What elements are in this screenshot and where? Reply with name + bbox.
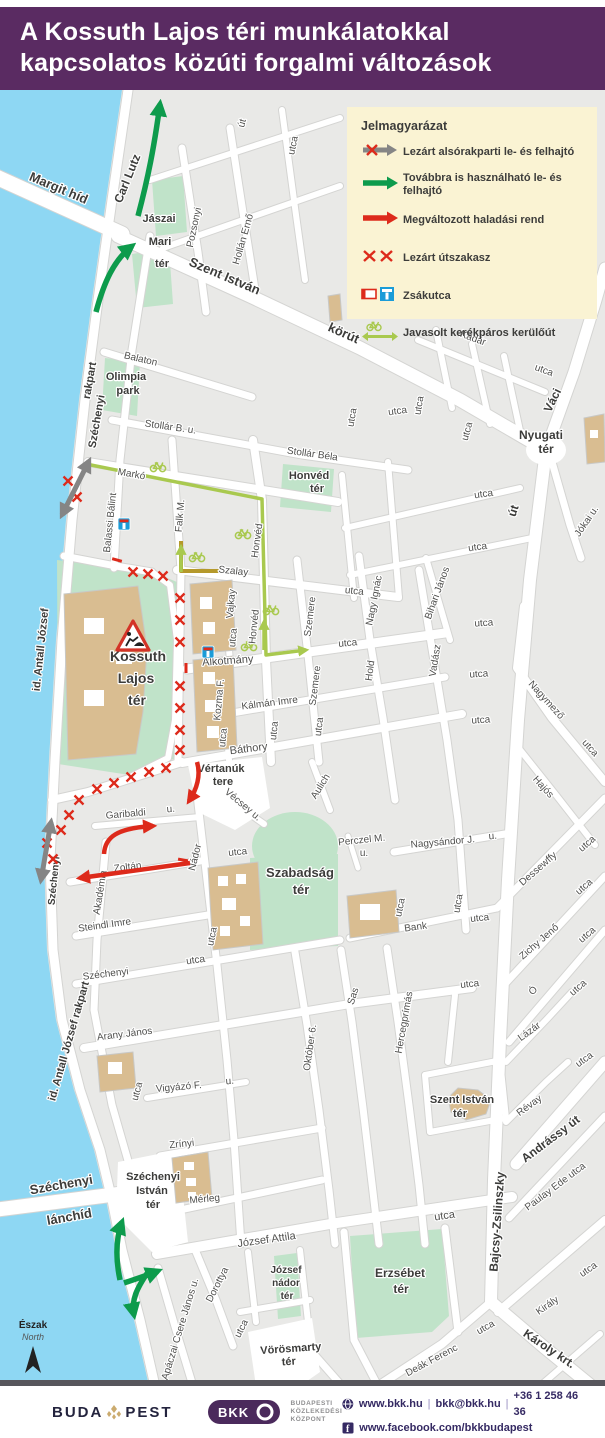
header: A Kossuth Lajos téri munkálatokkal kapcs… [0,7,605,90]
bkk-name-line3: KÖZPONT [291,1416,343,1424]
legend-item-label: Lezárt alsórakparti le- és felhajtó [403,146,574,159]
legend-title: Jelmagyarázat [361,119,585,133]
dead-end-sign-icon [118,518,130,530]
place-label: Vértanúk [197,763,245,775]
street-jnador-e [300,1250,308,1322]
building-courtyard [203,672,215,684]
street-oktober6 [295,952,335,1244]
street-label: utca [313,716,326,737]
legend-item-label: Megváltozott haladási rend [403,214,544,227]
street-label: utca [470,912,490,925]
page-title: A Kossuth Lajos téri munkálatokkal kapcs… [0,7,605,79]
street-label: utca [338,637,358,650]
footer: BUDA PEST BKK BUDAPESTI KÖZLEKEDÉSI KÖZP… [0,1386,605,1438]
building-courtyard [200,597,212,609]
bkk-name: BUDAPESTI KÖZLEKEDÉSI KÖZPONT [291,1400,343,1424]
building-courtyard [108,1062,122,1074]
budapest-logo-left: BUDA [52,1404,103,1421]
bkk-email-link[interactable]: bkk@bkk.hu [436,1396,501,1412]
street-label: utca [268,720,281,740]
building-small-top [328,294,342,322]
place-label: Lajos [118,670,155,686]
street-label: Vajkay [225,589,239,619]
street-label: Jókai u. [573,504,601,539]
building-courtyard [590,430,598,438]
title-line-2: kapcsolatos közúti forgalmi változások [20,48,605,79]
place-label: tér [128,692,146,708]
street-label: utca [578,1260,600,1280]
dead-end-icon [361,285,399,303]
contact-row-1: www.bkk.hu | bkk@bkk.hu | +36 1 258 46 3… [342,1388,591,1420]
place-label: tér [146,1199,161,1211]
bike-detour-icon [361,321,399,341]
place-label: tér [281,1355,297,1368]
building-courtyard [240,916,250,926]
place-label: park [116,385,140,397]
legend-item-label: Továbbra is használható le- és felhajtó [403,172,585,199]
budapest-crest-icon [106,1404,122,1420]
legend-item-label: Zsákutca [403,290,451,303]
place-label: tér [393,1282,409,1296]
globe-icon [342,1398,354,1410]
bike-detour-symbol [361,321,403,346]
budapest-logo: BUDA PEST [52,1404,173,1421]
closed-section-x [65,811,74,820]
place-label: út [505,503,522,518]
place-label: rakpart [81,361,99,400]
bkk-website-link[interactable]: www.bkk.hu [359,1396,423,1412]
legend-item-closed-ramp: Lezárt alsórakparti le- és felhajtó [361,141,585,164]
street-label: Bank [404,920,429,934]
building-courtyard [84,690,104,706]
street-label: utca [468,541,489,555]
legend-item-open-ramp: Továbbra is használható le- és felhajtó [361,172,585,199]
building-courtyard [186,1178,196,1186]
street-o-utca [509,930,605,1042]
street-bazilika-link [448,995,455,1062]
street-label: utca [227,627,240,647]
dead-end-symbol [361,285,403,308]
street-label: u. [166,804,175,816]
place-label: tér [155,258,170,270]
building-courtyard [222,898,236,910]
building-courtyard [84,618,104,634]
legend-items: Lezárt alsórakparti le- és felhajtó Tová… [361,141,585,346]
street-label: Falk M. [174,499,188,533]
legend-item-label: Lezárt útszakasz [403,252,490,265]
place-label: Erzsébet [375,1266,425,1280]
street-label: utca [344,585,364,598]
place-label: Mari [149,236,172,248]
building-courtyard [184,1162,194,1170]
street-label: utca [345,407,359,428]
changed-direction-icon [361,209,399,227]
street-honved-ter-v [342,475,354,598]
street-label: utca [217,727,230,747]
contact-separator: | [506,1396,509,1412]
place-label: Honvéd [289,470,329,482]
changed-direction-symbol [361,209,403,232]
street-label: utca [228,846,248,859]
closed-ramp-icon [361,141,399,159]
street-label: utca [433,1209,456,1224]
place-label: Jászai [142,213,175,225]
street-label: u. [225,1076,234,1088]
budapest-logo-right: PEST [125,1404,172,1421]
street-label: utca [533,362,555,379]
bicycle-icon [189,553,204,562]
place-label: tér [310,483,325,495]
facebook-icon: f [342,1422,354,1434]
street-label: utca [474,617,494,629]
street-label: u. [360,848,368,859]
place-label: Szabadság [266,865,334,880]
closed-ramp-symbol [361,141,403,164]
building-courtyard [236,874,246,884]
contact-block: www.bkk.hu | bkk@bkk.hu | +36 1 258 46 3… [342,1388,591,1436]
open-ramp-symbol [361,174,403,197]
legend-item-bike-detour: Javasolt kerékpáros kerülőút [361,321,585,346]
title-line-1: A Kossuth Lajos téri munkálatokkal [20,17,605,48]
dead-end-sign-icon [202,646,214,658]
street-label: út [236,118,249,129]
park-jaszai-mari-ter-n [152,176,187,236]
map-legend: Jelmagyarázat Lezárt alsórakparti le- és… [347,107,597,319]
compass-secondary: North [22,1332,44,1342]
street-label: utca [474,488,495,502]
street-bazilika-n [425,1060,502,1075]
building-courtyard [203,622,215,634]
street-label: utca [469,668,489,680]
legend-item-closed-section: Lezárt útszakasz [361,247,585,270]
place-label: nádor [272,1278,300,1289]
closed-section-icon [361,247,399,265]
street-label: u. [488,831,497,843]
legend-item-label: Javasolt kerékpáros kerülőút [403,327,555,340]
street-label: utca [460,978,480,991]
place-label: Széchenyi [126,1171,180,1183]
contact-row-2: f www.facebook.com/bkkbudapest [342,1420,591,1436]
place-label: tér [453,1108,468,1120]
infographic-page: A Kossuth Lajos téri munkálatokkal kapcs… [0,0,605,1438]
closed-section-symbol [361,247,403,270]
street-label: Zichy Jenő [518,922,562,962]
place-label: tér [293,882,310,897]
bkk-name-line1: BUDAPESTI [291,1400,343,1408]
street-mid-h1 [345,488,520,528]
place-label: Szent István [430,1094,494,1106]
place-label: Nyugati [519,428,563,442]
building-courtyard [218,876,228,886]
street-jokai [552,462,581,558]
place-label: Olimpia [106,371,147,383]
street-label: utca [577,833,599,854]
legend-item-dead-end: Zsákutca [361,285,585,308]
place-label: Károly krt. [521,1326,578,1371]
bkk-facebook-link[interactable]: www.facebook.com/bkkbudapest [359,1420,532,1436]
place-label: tér [538,442,554,456]
contact-separator: | [428,1396,431,1412]
compass-primary: Észak [19,1318,48,1331]
building-nyugati-building [584,414,605,464]
street-label: utca [412,395,426,416]
place-label: József [270,1265,302,1276]
street-label: utca [388,405,409,419]
bicycle-icon [235,530,250,539]
closed-section-x [57,826,66,835]
closed-entry-tick [178,859,188,861]
svg-text:BKK: BKK [218,1405,249,1420]
place-label: tér [281,1291,294,1302]
place-label: István [136,1185,168,1197]
street-label: Király [534,1294,561,1317]
building-courtyard [220,926,230,936]
street-label: utca [475,1318,497,1337]
changed-direction-arrow [104,826,153,854]
street-label: utca [471,714,491,726]
open-ramp-icon [361,174,399,192]
street-erzsebet-s [354,1340,378,1380]
bkk-logo-block: BKK BUDAPESTI KÖZLEKEDÉSI KÖZPONT [207,1398,343,1426]
building-courtyard [360,904,380,920]
street-label: utca [233,1318,252,1340]
street-label: utca [460,420,476,442]
legend-item-changed-direction: Megváltozott haladási rend [361,209,585,232]
bkk-logo: BKK [207,1398,283,1426]
bkk-name-line2: KÖZLEKEDÉSI [291,1408,343,1416]
street-label: Dessewffy [517,850,559,888]
street-label: utca [568,977,590,998]
bkk-phone: +36 1 258 46 36 [514,1388,591,1420]
street-label: Ó [526,983,541,998]
street-label: Honvéd [247,609,262,644]
